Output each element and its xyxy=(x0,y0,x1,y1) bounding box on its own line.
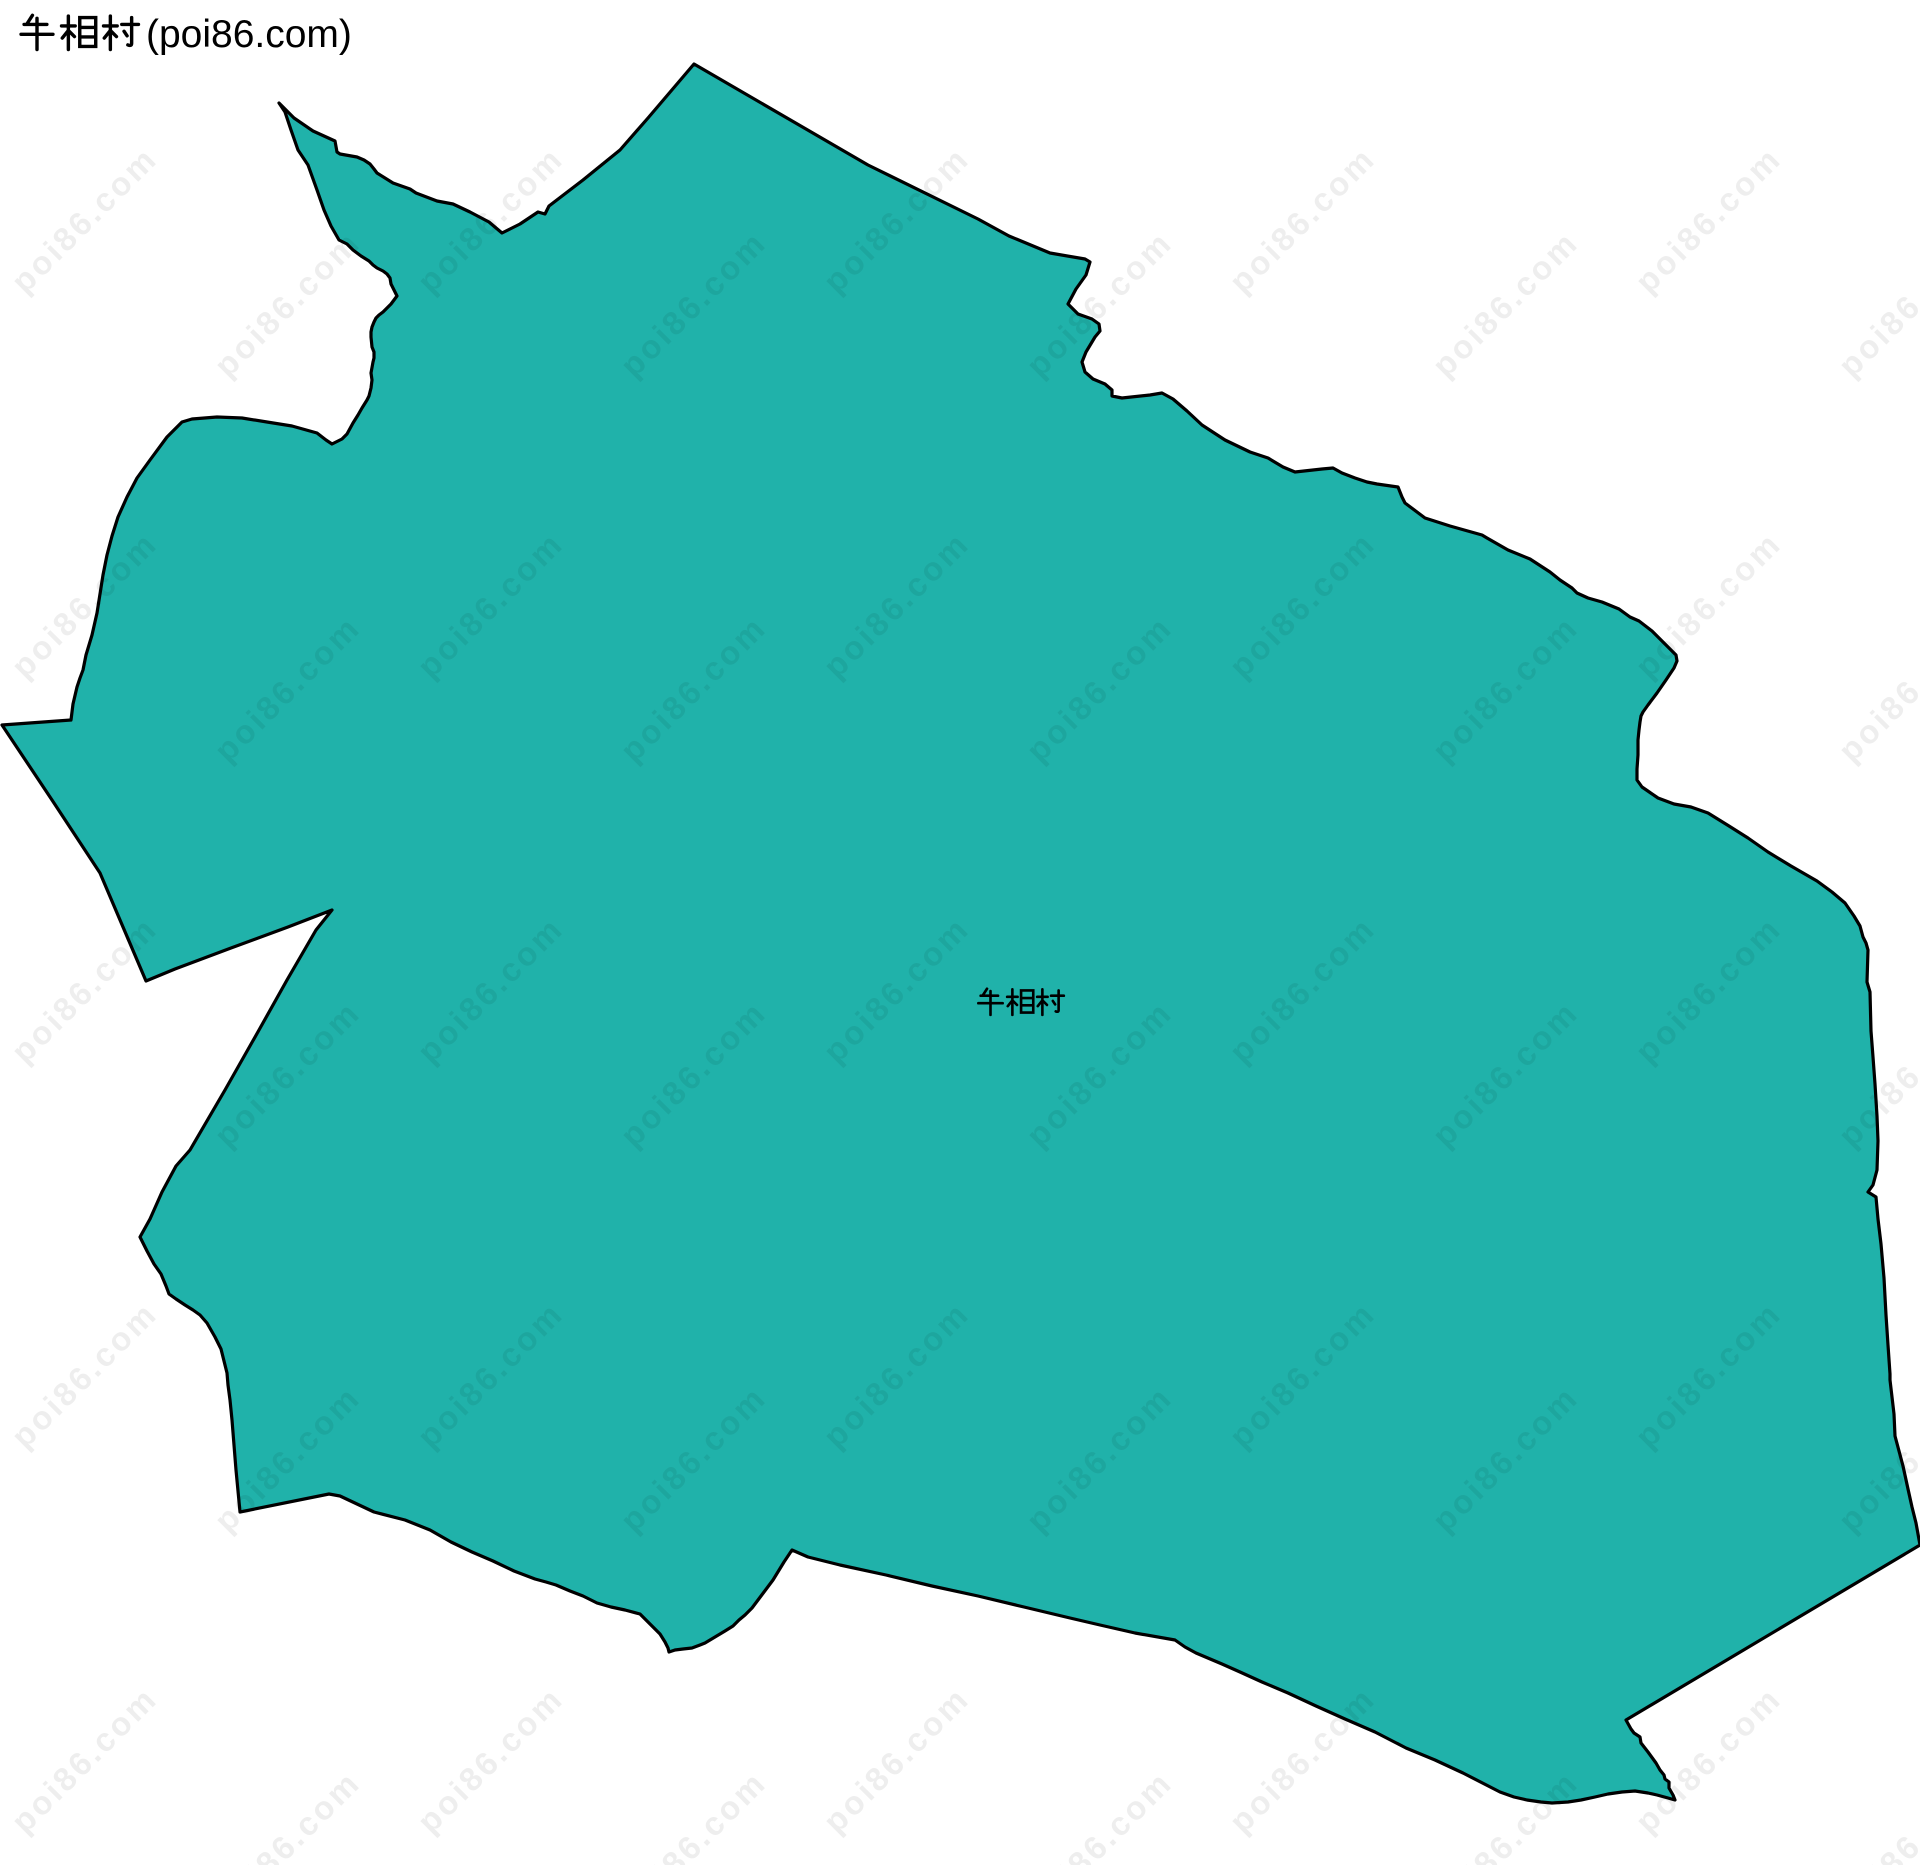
svg-text:(poi86.com): (poi86.com) xyxy=(146,13,352,56)
